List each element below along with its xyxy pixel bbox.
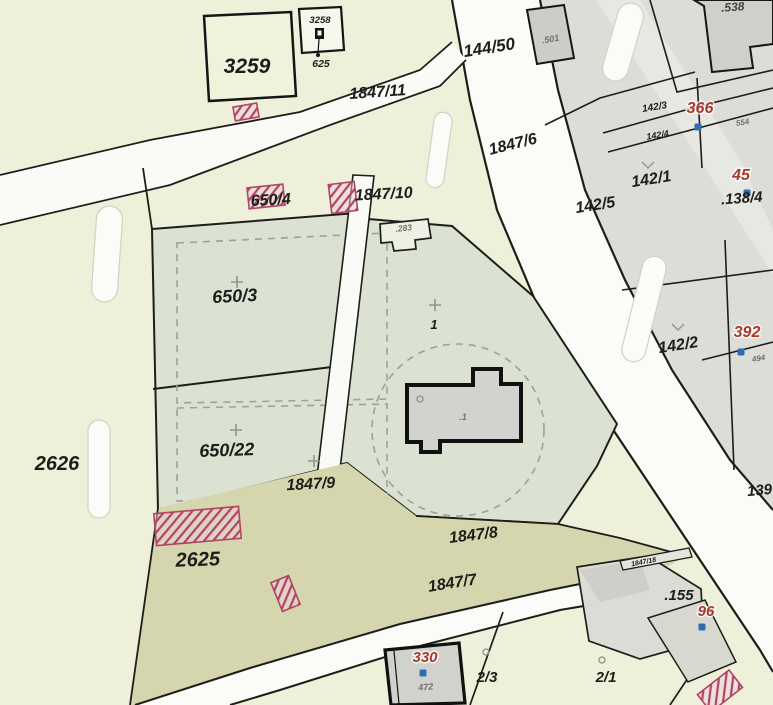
cadastral-map[interactable]: 325932586251847/11144/50.501.538142/3366… <box>0 0 773 705</box>
parcel-label-366: 366 <box>687 100 714 117</box>
parcel-label--538: .538 <box>721 0 746 15</box>
red-hatch-mark <box>328 182 357 214</box>
parcel-label-2626: 2626 <box>34 453 80 475</box>
parcel-label-392: 392 <box>734 324 761 341</box>
parcel-label-2-3: 2/3 <box>476 669 499 686</box>
parcel-label-650-22: 650/22 <box>199 439 255 461</box>
parcel-label-472: 472 <box>417 681 434 692</box>
red-hatch-mark <box>154 506 241 545</box>
parcel-label-1847-10: 1847/10 <box>354 184 413 204</box>
parcel-label-2-1: 2/1 <box>595 669 617 686</box>
survey-point-marker <box>699 624 706 631</box>
parcel-label-1847-9: 1847/9 <box>286 475 336 495</box>
cadastral-map-viewport[interactable]: 325932586251847/11144/50.501.538142/3366… <box>0 0 773 705</box>
red-hatch-mark <box>233 103 259 121</box>
survey-point-marker <box>738 349 745 356</box>
parcel-label--138-4: .138/4 <box>720 189 763 209</box>
parcel-label-3258: 3258 <box>309 15 331 26</box>
survey-point-marker <box>420 670 427 677</box>
parcel-label--1: .1 <box>459 412 467 422</box>
parcel-label-330: 330 <box>412 649 438 666</box>
parcel-label--155: .155 <box>664 587 694 604</box>
parcel-label-650-4: 650/4 <box>250 191 291 210</box>
parcel-label-2625: 2625 <box>174 548 221 572</box>
parcel-label-45: 45 <box>731 167 751 184</box>
driveway-strip <box>88 420 110 518</box>
parcel-label-1: 1 <box>430 317 437 332</box>
parcel-label-96: 96 <box>698 603 715 620</box>
parcel-label-625: 625 <box>312 58 330 70</box>
survey-point-marker <box>695 124 702 131</box>
parcel-label-139: 139 <box>746 481 773 500</box>
parcel-label--283: .283 <box>395 222 413 234</box>
parcel-label-3259: 3259 <box>224 55 271 78</box>
parcel-label-650-3: 650/3 <box>212 285 258 307</box>
